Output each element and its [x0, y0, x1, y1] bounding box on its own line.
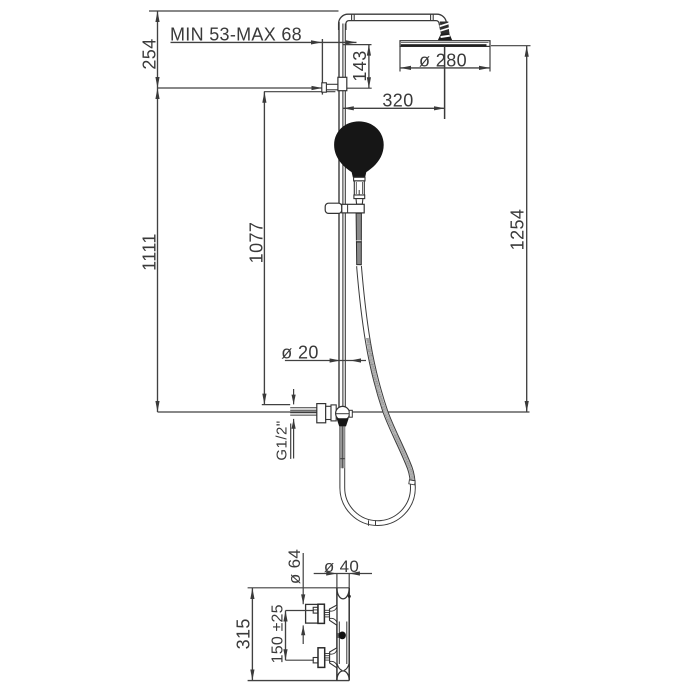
svg-text:G1/2": G1/2"	[274, 420, 291, 460]
svg-text:143: 143	[350, 50, 370, 81]
svg-text:1254: 1254	[508, 209, 528, 251]
svg-text:254: 254	[140, 38, 160, 69]
svg-text:315: 315	[234, 618, 254, 649]
svg-text:MIN 53-MAX 68: MIN 53-MAX 68	[170, 24, 302, 44]
svg-text:150 ±25: 150 ±25	[270, 604, 287, 663]
svg-text:320: 320	[382, 90, 413, 110]
svg-text:1111: 1111	[140, 233, 160, 271]
svg-text:ø 64: ø 64	[285, 549, 304, 584]
svg-text:ø 280: ø 280	[419, 50, 467, 70]
svg-text:ø 20: ø 20	[281, 342, 319, 362]
svg-text:1077: 1077	[247, 222, 267, 264]
